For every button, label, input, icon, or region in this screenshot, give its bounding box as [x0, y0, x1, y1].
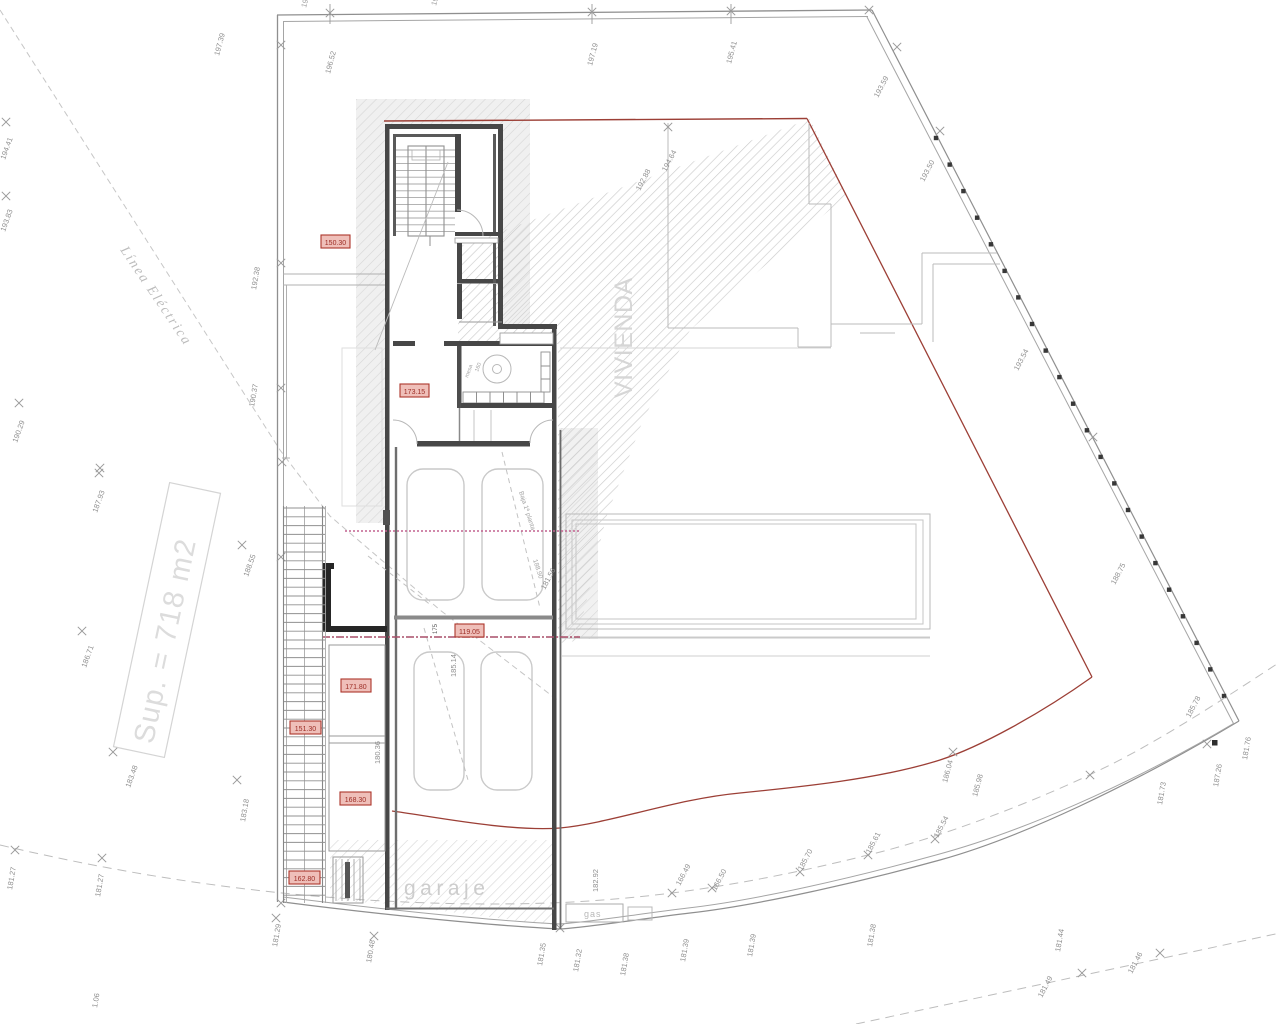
svg-text:173.15: 173.15	[404, 389, 426, 396]
svg-text:175: 175	[433, 623, 439, 634]
svg-text:182.92: 182.92	[591, 869, 600, 892]
svg-text:171.80: 171.80	[345, 684, 367, 691]
svg-text:185.14: 185.14	[449, 654, 458, 677]
svg-text:162.80: 162.80	[294, 876, 316, 883]
svg-text:garaje: garaje	[404, 877, 489, 900]
svg-text:119.05: 119.05	[459, 629, 480, 636]
svg-text:VIVIENDA: VIVIENDA	[610, 277, 638, 398]
svg-text:151.30: 151.30	[295, 726, 317, 733]
svg-text:168.30: 168.30	[345, 797, 367, 804]
svg-text:150.30: 150.30	[325, 240, 347, 247]
svg-text:gas: gas	[584, 909, 602, 919]
svg-text:180.36: 180.36	[373, 741, 382, 764]
